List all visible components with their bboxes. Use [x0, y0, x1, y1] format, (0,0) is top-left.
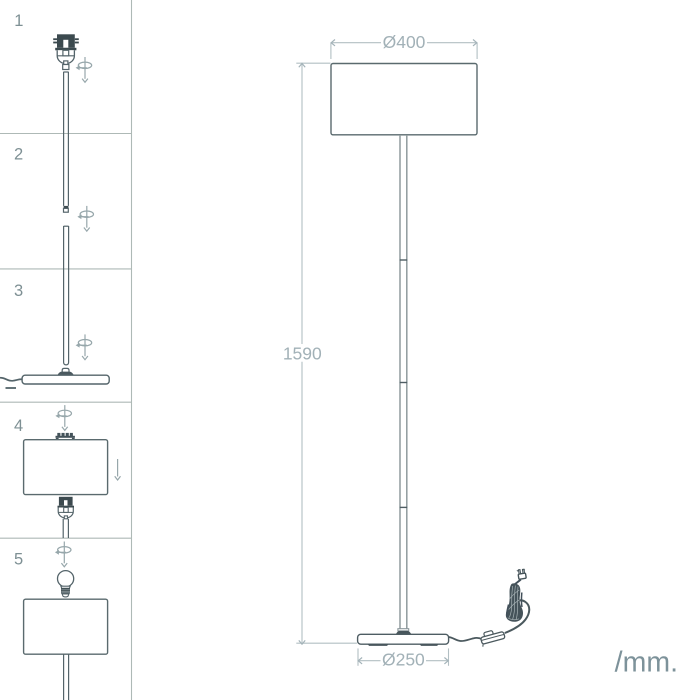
svg-text:3: 3: [14, 282, 23, 300]
svg-text:Ø250: Ø250: [382, 649, 425, 669]
svg-text:4: 4: [14, 417, 23, 435]
svg-text:1: 1: [14, 12, 23, 30]
svg-text:1590: 1590: [283, 344, 322, 364]
svg-text:/mm.: /mm.: [615, 647, 678, 679]
svg-text:5: 5: [14, 551, 23, 569]
svg-text:Ø400: Ø400: [383, 32, 426, 52]
svg-text:2: 2: [14, 146, 23, 164]
